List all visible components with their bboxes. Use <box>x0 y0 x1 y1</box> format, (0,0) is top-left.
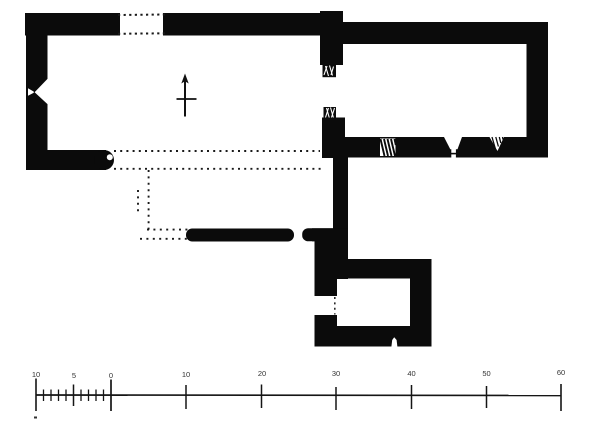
svg-text:60: 60 <box>557 368 565 377</box>
svg-text:5: 5 <box>72 371 76 380</box>
svg-text:10: 10 <box>182 370 190 379</box>
svg-text:20: 20 <box>258 369 266 378</box>
svg-text:10: 10 <box>32 370 40 379</box>
svg-text:30: 30 <box>332 369 340 378</box>
svg-text:50: 50 <box>482 369 490 378</box>
svg-text:0: 0 <box>109 371 113 380</box>
svg-text:40: 40 <box>407 369 415 378</box>
